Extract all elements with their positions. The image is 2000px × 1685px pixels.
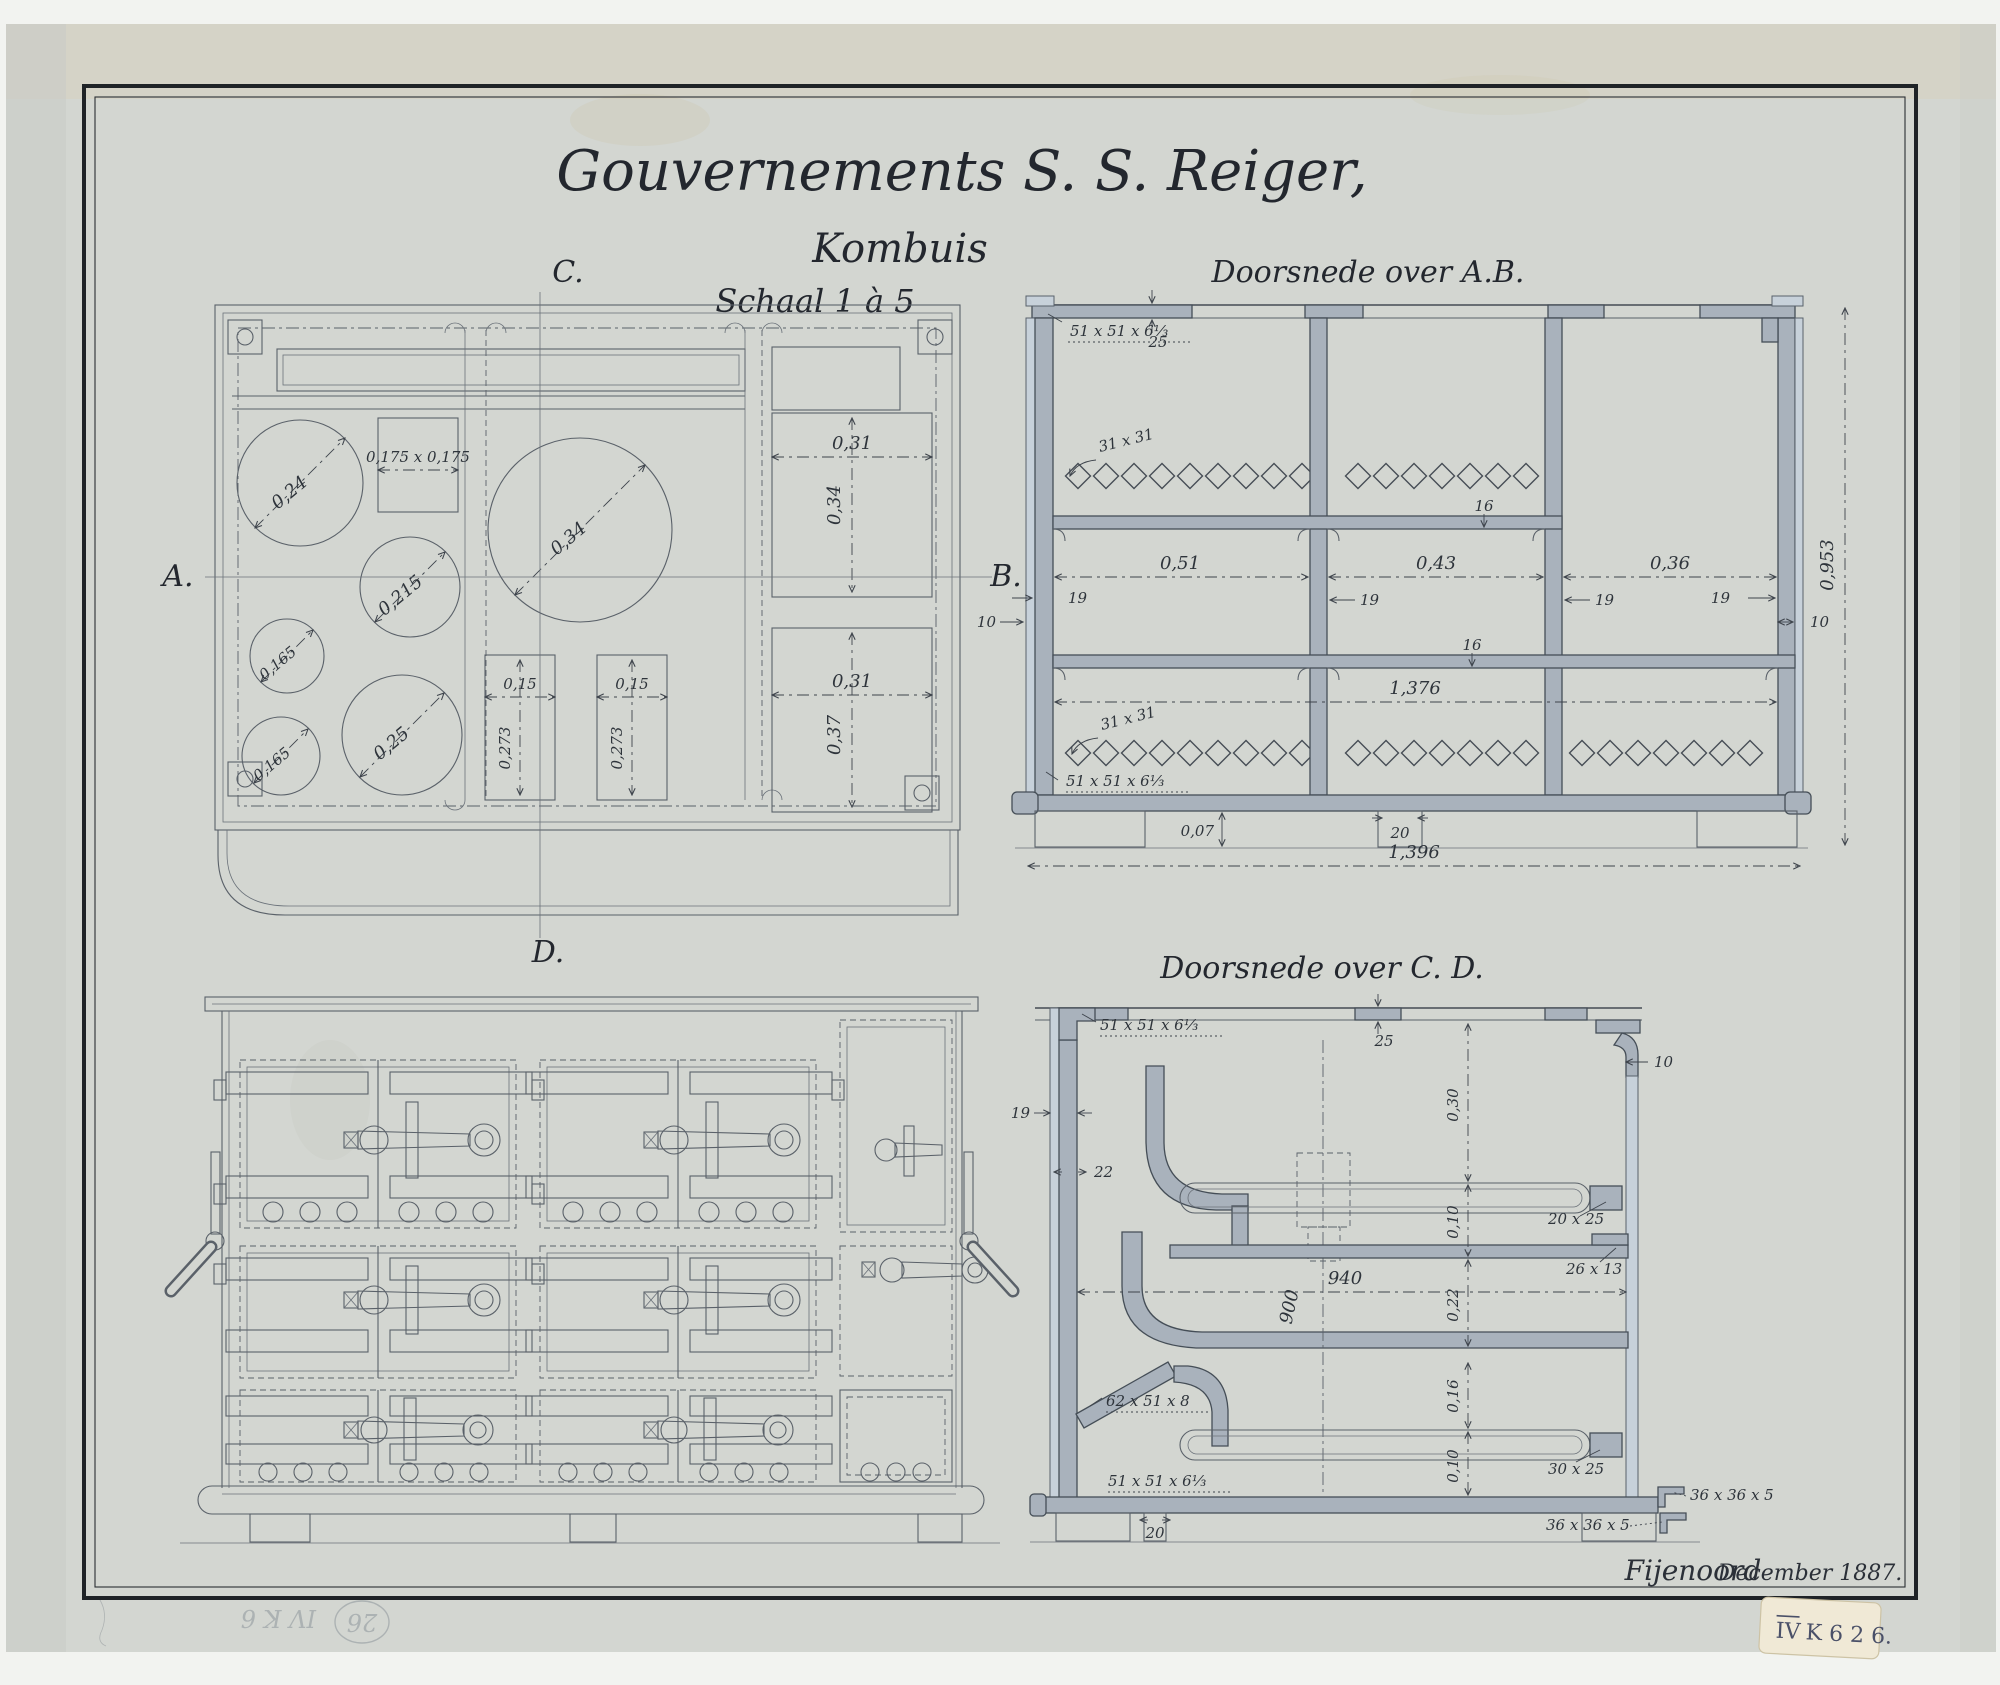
dim-label: 19 xyxy=(1360,591,1380,609)
dim-label: 0,22 xyxy=(1444,1288,1462,1321)
dim-label: 30 x 25 xyxy=(1548,1460,1604,1478)
dim-label: 0,273 xyxy=(496,727,514,770)
dim-label: 51 x 51 x 6⅓ xyxy=(1108,1472,1206,1490)
drawing-title: Gouvernements S. S. Reiger, xyxy=(556,139,1367,204)
drawing-scale: Schaal 1 à 5 xyxy=(715,282,914,320)
dim-label: 0,175 x 0,175 xyxy=(366,448,470,466)
partition-1 xyxy=(1310,318,1327,795)
dim-label: 16 xyxy=(1474,497,1494,515)
dim-label: 36 x 36 x 5 xyxy=(1690,1486,1774,1504)
section-ab-title: Doorsnede over A.B. xyxy=(1211,255,1525,290)
drawing-subtitle: Kombuis xyxy=(811,226,988,272)
left-wall xyxy=(1035,318,1053,795)
sticker-code: K 6 2 6. xyxy=(1805,1620,1893,1649)
dim-label: 19 xyxy=(1068,589,1088,607)
dim-label: 0,16 xyxy=(1444,1379,1462,1413)
sticker-roman-numeral: IV xyxy=(1775,1619,1802,1645)
dim-label: 20 xyxy=(1389,824,1410,842)
dim-label: 19 xyxy=(1595,591,1615,609)
dim-label: 20 x 25 xyxy=(1547,1210,1604,1228)
paper-background xyxy=(0,0,2000,1685)
dim-label: 19 xyxy=(1011,1104,1031,1122)
dim-label: 0,30 xyxy=(1444,1088,1462,1122)
section-marker-b: B. xyxy=(989,559,1022,594)
dim-label: 0,10 xyxy=(1444,1449,1462,1483)
dim-label: 22 xyxy=(1093,1163,1113,1181)
dim-label: 25 xyxy=(1373,1032,1393,1050)
dim-label: 0,07 xyxy=(1181,822,1215,840)
dim-label: 0,37 xyxy=(824,714,845,755)
shelf-upper xyxy=(1053,516,1562,529)
right-outer-plate xyxy=(1795,318,1803,795)
dim-label: 16 xyxy=(1462,636,1482,654)
signature-date: December 1887. xyxy=(1717,1561,1902,1586)
right-wall xyxy=(1778,318,1795,795)
partition-2 xyxy=(1545,318,1562,795)
cd-right-wall xyxy=(1626,1076,1638,1498)
archive-sticker: IV K 6 2 6. xyxy=(1759,1597,1894,1660)
cd-left-wall xyxy=(1059,1040,1077,1504)
section-marker-c: C. xyxy=(552,255,583,290)
dim-label: 62 x 51 x 8 xyxy=(1106,1392,1190,1410)
dim-label: 10 xyxy=(1810,613,1830,631)
dim-label: 10 xyxy=(977,613,997,631)
dim-label: 20 xyxy=(1144,1524,1165,1542)
dim-label: 0,51 xyxy=(1160,553,1200,574)
dim-label: 10 xyxy=(1654,1053,1674,1071)
cd-left-plate xyxy=(1050,1008,1059,1504)
dim-label: 0,36 xyxy=(1650,553,1690,574)
pencil-code: IV K 6 xyxy=(241,1604,317,1632)
drawing-sheet: Gouvernements S. S. Reiger, Kombuis Scha… xyxy=(0,0,2000,1685)
blueprint-canvas: Gouvernements S. S. Reiger, Kombuis Scha… xyxy=(0,0,2000,1685)
left-outer-plate xyxy=(1026,318,1035,795)
shelf-plate xyxy=(1170,1245,1628,1258)
pencil-circled-number: 26 xyxy=(347,1608,379,1636)
section-cd-title: Doorsnede over C. D. xyxy=(1159,951,1484,986)
dim-label: 1,376 xyxy=(1389,678,1441,699)
grate-diamond-row-lower xyxy=(1064,739,1764,767)
dim-label: 51 x 51 x 6⅓ xyxy=(1100,1016,1198,1034)
shelf-lower xyxy=(1053,655,1795,668)
dim-label: 51 x 51 x 6⅓ xyxy=(1070,322,1168,340)
section-marker-a: A. xyxy=(159,559,193,594)
section-marker-d: D. xyxy=(531,935,565,970)
dim-label: 51 x 51 x 6⅓ xyxy=(1066,772,1164,790)
dim-label: 0,273 xyxy=(608,727,626,770)
grate-diamond-row-upper xyxy=(1064,462,1540,490)
dim-label: 26 x 13 xyxy=(1565,1260,1622,1278)
dim-label: 0,10 xyxy=(1444,1205,1462,1239)
dim-label: 36 x 36 x 5 xyxy=(1546,1516,1630,1534)
dim-label: 940 xyxy=(1328,1268,1362,1289)
dim-label: 19 xyxy=(1711,589,1731,607)
dim-label: 0,34 xyxy=(824,485,845,525)
dim-label: 0,43 xyxy=(1416,553,1456,574)
dim-label: 0,953 xyxy=(1817,539,1838,591)
dim-label: 1,396 xyxy=(1388,842,1440,863)
